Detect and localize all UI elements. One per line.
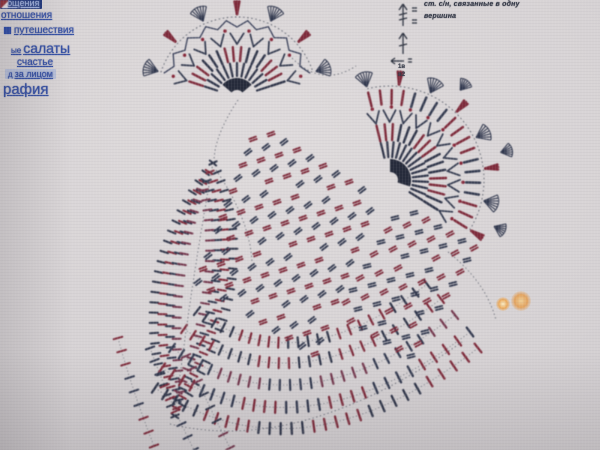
legend-line-2: вершина: [424, 13, 456, 20]
sidebar-link-6[interactable]: рафия: [3, 81, 49, 98]
sidebar: общенияотношенияпутешествияыесалатысчаст…: [0, 0, 110, 110]
link-prefix: д: [8, 70, 13, 79]
legend-line-1: ст. с/н, связанные в одну: [424, 1, 520, 8]
sidebar-link-1[interactable]: отношения: [1, 10, 52, 21]
legend-small-1: 1в: [398, 64, 405, 70]
sidebar-link-2[interactable]: путешествия: [4, 25, 74, 36]
bullet-icon: [4, 27, 11, 34]
legend-small-2: в2: [398, 72, 405, 78]
link-label: путешествия: [14, 25, 74, 36]
link-prefix: ые: [11, 46, 21, 55]
link-label: салаты: [23, 40, 70, 56]
link-label: рафия: [3, 81, 49, 98]
link-label: отношения: [1, 10, 52, 21]
link-label: счастье: [17, 57, 53, 68]
sidebar-link-5[interactable]: дза лицом: [5, 69, 56, 79]
corner-image-fragment: [0, 0, 8, 8]
sidebar-link-4[interactable]: счастье: [17, 57, 53, 68]
sidebar-link-3[interactable]: ыесалаты: [11, 40, 70, 56]
photographed-screen: общенияотношенияпутешествияыесалатысчаст…: [0, 0, 600, 450]
link-label: за лицом: [15, 69, 53, 79]
